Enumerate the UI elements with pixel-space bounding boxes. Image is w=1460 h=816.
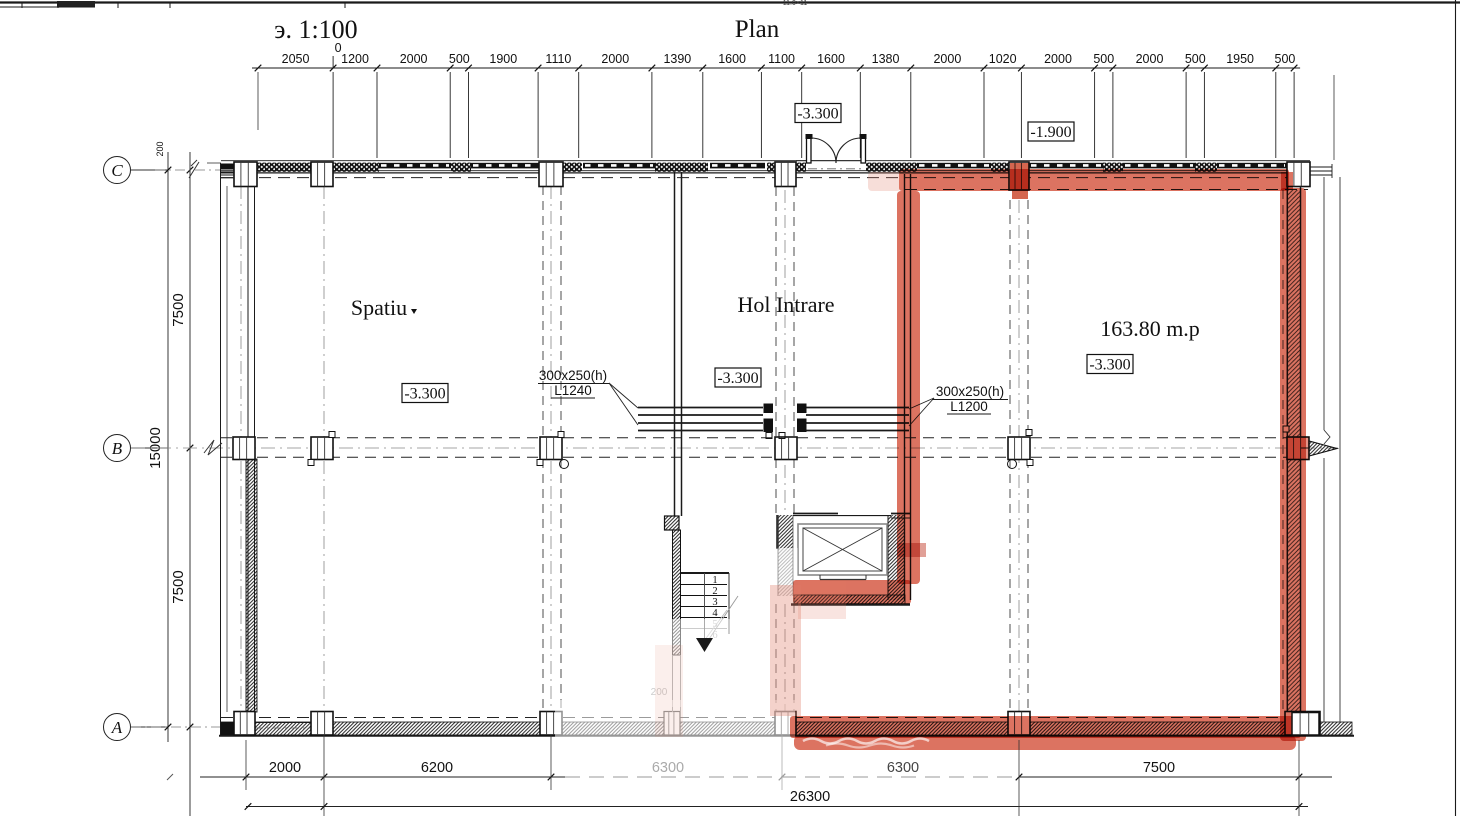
svg-text:500: 500 — [1093, 52, 1114, 66]
svg-text:1380: 1380 — [872, 52, 900, 66]
svg-text:2000: 2000 — [1136, 52, 1164, 66]
svg-text:500: 500 — [449, 52, 470, 66]
svg-text:-3.300: -3.300 — [404, 386, 445, 403]
svg-text:163.80 m.p: 163.80 m.p — [1100, 316, 1200, 341]
svg-text:2000: 2000 — [269, 760, 301, 776]
svg-text:7500: 7500 — [1143, 760, 1175, 776]
svg-text:4: 4 — [712, 608, 718, 619]
svg-text:Spatiu: Spatiu — [351, 295, 407, 320]
svg-text:2000: 2000 — [400, 52, 428, 66]
svg-text:1020: 1020 — [989, 52, 1017, 66]
svg-text:2000: 2000 — [1044, 52, 1072, 66]
svg-text:300x250(h): 300x250(h) — [936, 384, 1004, 399]
svg-text:1950: 1950 — [1226, 52, 1254, 66]
svg-text:6200: 6200 — [421, 760, 453, 776]
svg-text:1110: 1110 — [545, 52, 571, 66]
svg-text:2050: 2050 — [282, 52, 310, 66]
svg-text:B: B — [112, 439, 123, 458]
svg-text:7500: 7500 — [170, 570, 187, 603]
svg-text:L1240: L1240 — [554, 383, 592, 398]
svg-text:-3.300: -3.300 — [1089, 357, 1130, 374]
svg-text:1390: 1390 — [663, 52, 691, 66]
svg-text:Hol Intrare: Hol Intrare — [737, 292, 834, 317]
svg-text:300x250(h): 300x250(h) — [539, 368, 607, 383]
svg-text:L1200: L1200 — [950, 399, 988, 414]
svg-text:2000: 2000 — [601, 52, 629, 66]
svg-text:1: 1 — [712, 575, 717, 586]
svg-text:A: A — [111, 718, 123, 737]
svg-text:э. 1:100: э. 1:100 — [274, 15, 357, 44]
svg-text:-3.300: -3.300 — [717, 370, 758, 387]
svg-text:C: C — [111, 161, 123, 180]
svg-text:-3.300: -3.300 — [797, 106, 838, 123]
svg-text:3: 3 — [712, 597, 717, 608]
svg-text:1600: 1600 — [817, 52, 845, 66]
svg-text:1600: 1600 — [718, 52, 746, 66]
svg-text:2000: 2000 — [933, 52, 961, 66]
svg-text:6300: 6300 — [887, 760, 919, 776]
svg-text:-1.900: -1.900 — [1030, 124, 1071, 141]
svg-text:200: 200 — [155, 141, 165, 156]
svg-text:1200: 1200 — [341, 52, 369, 66]
svg-text:Plan: Plan — [735, 16, 780, 43]
svg-text:6300: 6300 — [652, 760, 684, 776]
svg-text:2: 2 — [712, 586, 717, 597]
svg-text:1900: 1900 — [489, 52, 517, 66]
svg-text:500: 500 — [1275, 52, 1296, 66]
svg-text:0: 0 — [335, 41, 342, 55]
svg-text:11.0×11: 11.0×11 — [783, 0, 808, 7]
svg-text:7500: 7500 — [170, 293, 187, 326]
svg-text:1100: 1100 — [768, 52, 795, 66]
svg-text:500: 500 — [1185, 52, 1206, 66]
svg-text:26300: 26300 — [790, 789, 830, 805]
